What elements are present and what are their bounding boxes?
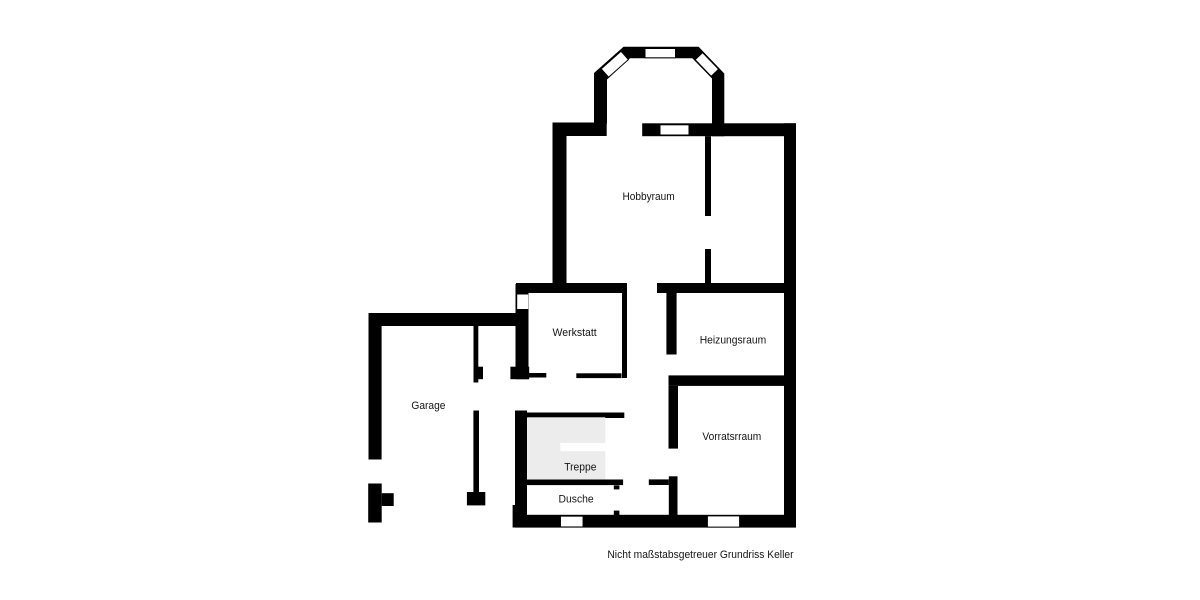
svg-text:Garage: Garage [411,400,445,412]
svg-text:Nicht maßstabsgetreuer Grundri: Nicht maßstabsgetreuer Grundriss Keller [607,549,793,561]
svg-text:Treppe: Treppe [564,462,596,474]
svg-text:Vorratsrraum: Vorratsrraum [702,431,761,443]
svg-text:Dusche: Dusche [559,494,594,506]
svg-text:Werkstatt: Werkstatt [553,327,597,339]
svg-text:Heizungsraum: Heizungsraum [700,335,767,347]
svg-text:Hobbyraum: Hobbyraum [623,191,675,203]
